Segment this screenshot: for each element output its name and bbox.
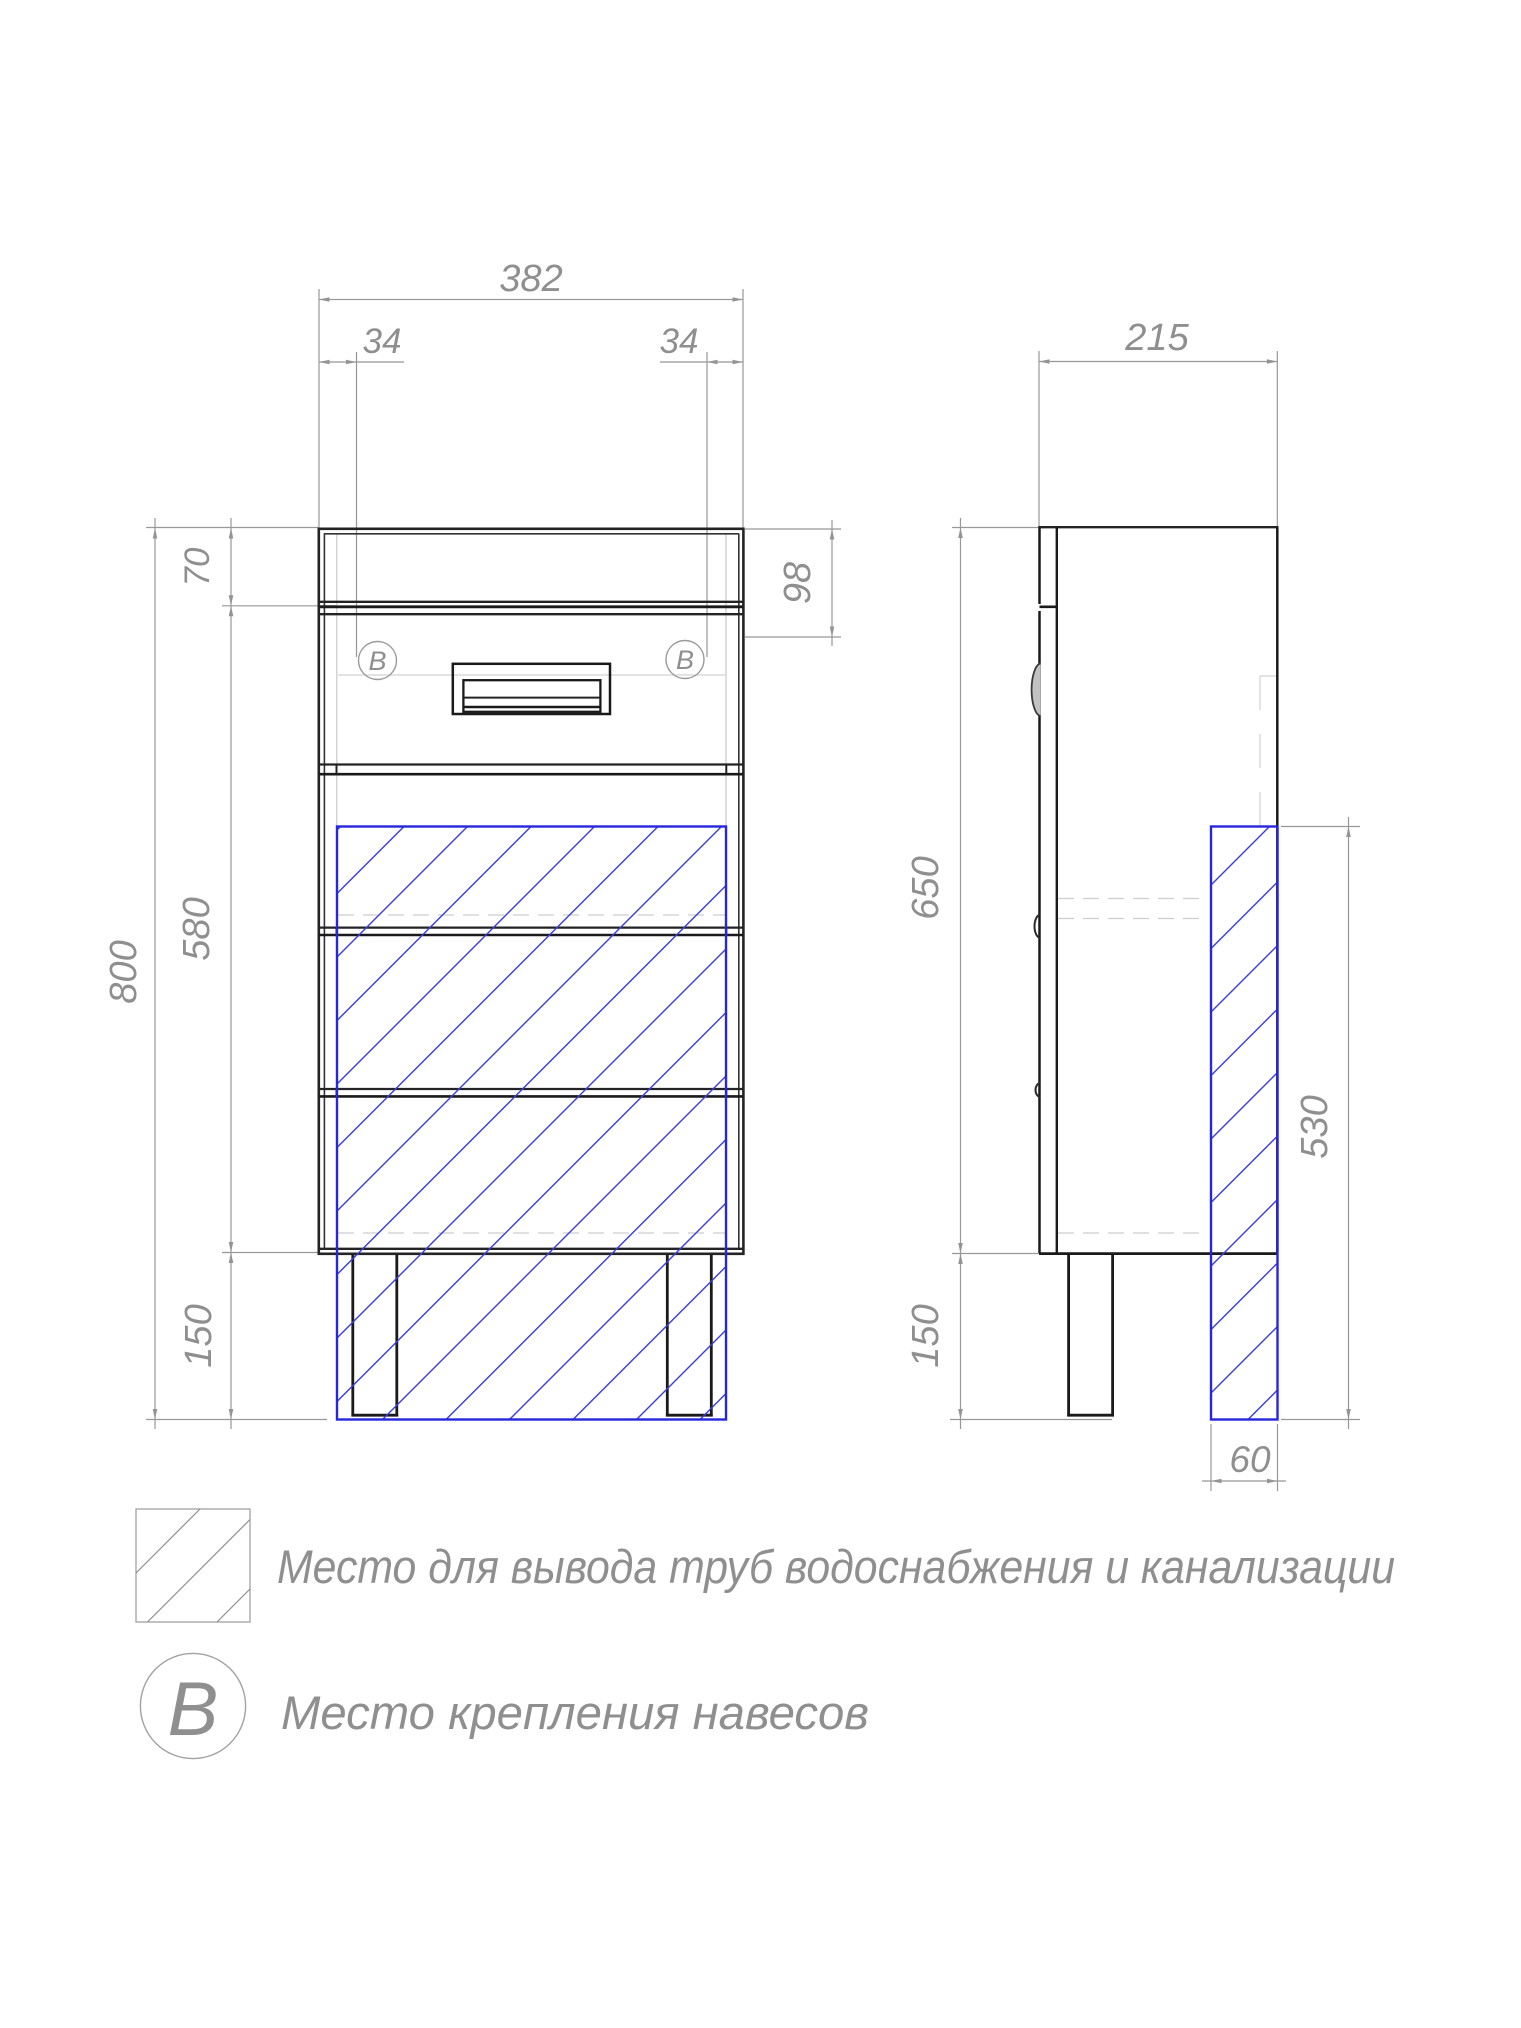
svg-text:150: 150 <box>905 1304 947 1367</box>
svg-text:215: 215 <box>1124 317 1189 359</box>
svg-text:B: B <box>368 646 386 676</box>
svg-text:B: B <box>168 1667 219 1752</box>
svg-text:650: 650 <box>905 856 947 919</box>
svg-text:580: 580 <box>176 897 218 960</box>
svg-text:60: 60 <box>1229 1439 1271 1480</box>
svg-text:34: 34 <box>660 322 699 361</box>
svg-text:70: 70 <box>178 547 217 586</box>
svg-text:382: 382 <box>499 258 562 300</box>
svg-text:34: 34 <box>363 322 402 361</box>
svg-text:Место для вывода труб водоснаб: Место для вывода труб водоснабжения и ка… <box>277 1540 1395 1593</box>
svg-text:530: 530 <box>1294 1095 1336 1158</box>
svg-text:150: 150 <box>178 1304 220 1367</box>
svg-text:Место крепления навесов: Место крепления навесов <box>281 1686 869 1739</box>
svg-text:98: 98 <box>777 562 819 604</box>
svg-text:800: 800 <box>103 940 145 1003</box>
svg-text:B: B <box>676 645 694 675</box>
